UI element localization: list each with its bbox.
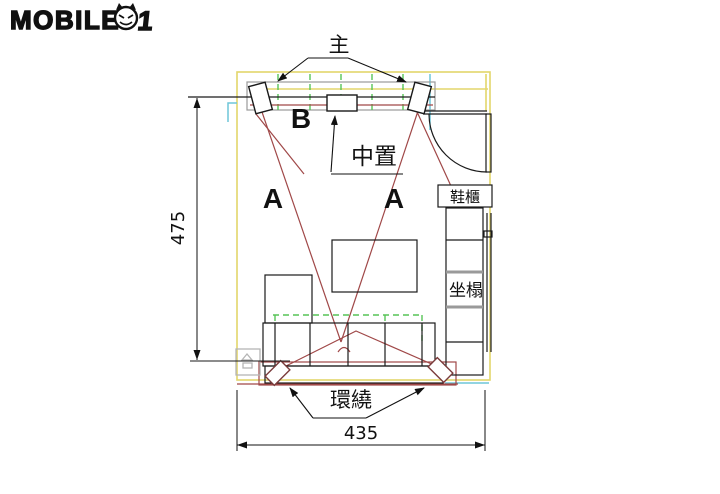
window: [484, 213, 492, 352]
dim-width-value: 435: [344, 423, 378, 444]
logo-face-icon: [115, 3, 137, 29]
aim-line-left-main: [262, 112, 341, 342]
door-swing-arc: [429, 114, 487, 172]
label-main-speakers: 主: [329, 34, 350, 57]
surround-speaker-left: [265, 361, 290, 386]
floorplan-canvas: MOBILE 1: [0, 0, 720, 494]
label-a-left: A: [263, 183, 283, 214]
outlet-symbol-icon: [236, 349, 260, 375]
center-speaker: [327, 95, 357, 111]
main-speaker-left: [249, 82, 273, 113]
dim-depth-value: 475: [168, 211, 189, 245]
label-center-speaker: 中置: [351, 143, 397, 169]
label-shoe-cabinet: 鞋櫃: [450, 189, 480, 206]
shoe-cabinet-label: 鞋櫃: [438, 185, 492, 207]
dimension-475: 475: [168, 98, 197, 360]
mobile01-logo: MOBILE 1: [10, 3, 154, 36]
main-speaker-right: [408, 82, 432, 113]
logo-text-right: 1: [136, 5, 154, 36]
coffee-table: [332, 240, 417, 292]
surround-speaker-right: [428, 358, 453, 383]
side-table: [265, 275, 312, 323]
accent-lines-cyan: [228, 74, 489, 383]
label-b-position: B: [291, 103, 311, 134]
label-bench-seat: 坐榻: [449, 281, 483, 300]
logo-text-left: MOBILE: [10, 5, 120, 35]
label-surround: 環繞: [330, 389, 372, 412]
door: [423, 89, 491, 172]
aim-line-surround: [276, 331, 443, 371]
label-a-right: A: [384, 183, 404, 214]
